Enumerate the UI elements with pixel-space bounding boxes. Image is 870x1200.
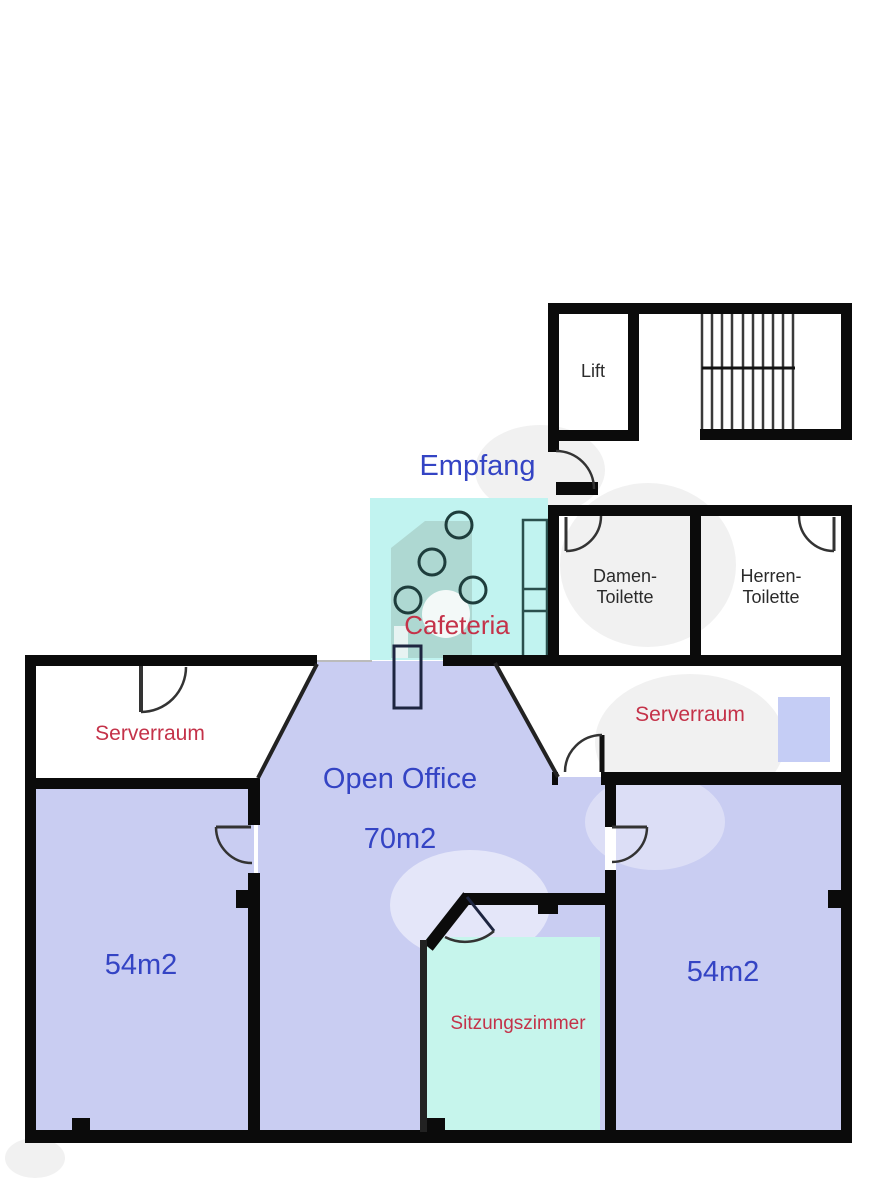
server-rack [778,697,830,762]
floorplan-canvas: Empfang Lift Damen- Toilette Herren- Toi… [0,0,870,1200]
door-arc-icon [799,516,834,551]
thin-wall [420,940,427,1132]
door-leaf-icon [556,482,598,495]
serverraum-right-label: Serverraum [610,703,770,727]
door-arc-icon [141,667,186,712]
sitzungszimmer-label: Sitzungszimmer [428,1013,608,1035]
watermark-circle [5,1138,65,1178]
serverraum-left-label: Serverraum [70,722,230,746]
cafeteria-label: Cafeteria [390,611,524,641]
open-office-label: Open Office [290,763,510,796]
stairs [702,314,795,429]
room-left-area-label: 54m2 [51,949,231,982]
herren-toilette-label: Herren- Toilette [706,566,836,607]
damen-toilette-label: Damen- Toilette [560,566,690,607]
open-office-area-label: 70m2 [290,823,510,856]
empfang-label: Empfang [400,450,555,483]
lift-label: Lift [556,361,630,382]
room-right-area-label: 54m2 [633,956,813,989]
